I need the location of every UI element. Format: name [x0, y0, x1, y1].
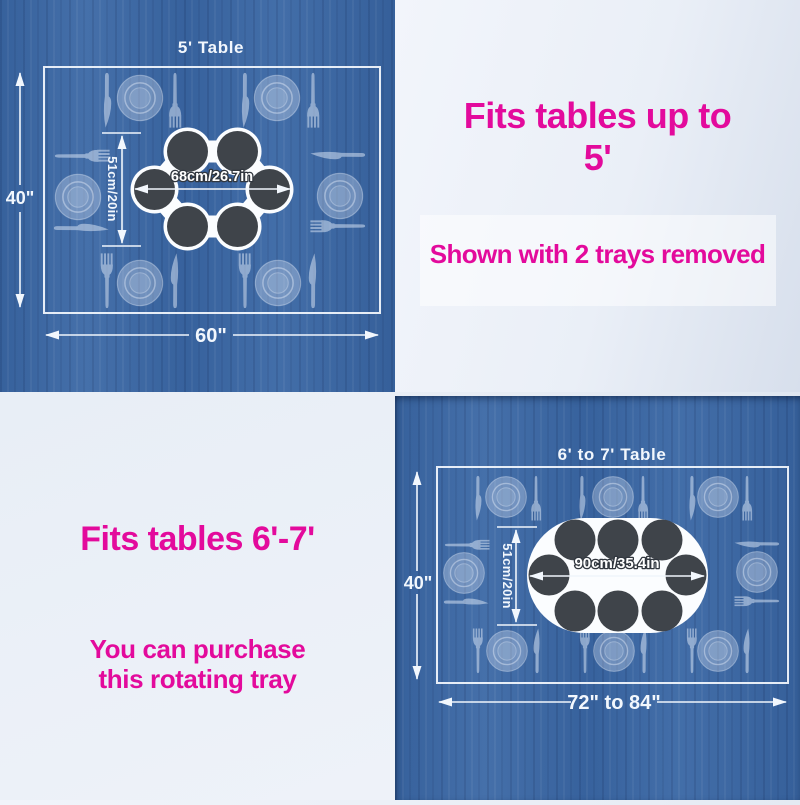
- tray-dish: [555, 591, 596, 632]
- knife-icon: [171, 253, 178, 308]
- table-size-title: 6' to 7' Table: [558, 445, 667, 464]
- note-band: Shown with 2 trays removed: [420, 215, 776, 306]
- table-width-label: 72" to 84": [567, 692, 660, 714]
- table-size-title: 5' Table: [178, 38, 244, 57]
- heading-line1: Fits tables up to: [405, 95, 790, 137]
- fork-icon: [101, 253, 113, 308]
- knife-icon: [735, 541, 780, 547]
- tray-height-label: 51cm/20in: [105, 156, 120, 222]
- fork-icon: [310, 220, 365, 232]
- plate-icon: [593, 477, 634, 518]
- fork-icon: [445, 540, 490, 550]
- plate-icon: [55, 174, 100, 219]
- tray-width-label: 68cm/26.7in: [171, 169, 253, 185]
- purchase-note: You can purchase this rotating tray: [10, 635, 385, 694]
- plate-icon: [737, 552, 778, 593]
- knife-icon: [579, 476, 585, 521]
- table-height-label: 40": [404, 573, 433, 593]
- table-width-label: 60": [195, 325, 227, 347]
- fork-icon: [169, 73, 181, 128]
- table-height-label: 40": [6, 188, 35, 208]
- plate-icon: [117, 75, 162, 120]
- place-settings: [54, 73, 365, 308]
- knife-icon: [534, 629, 540, 674]
- fork-icon: [580, 629, 590, 674]
- tray-dish: [529, 555, 570, 596]
- plate-icon: [487, 631, 528, 672]
- plate-icon: [317, 173, 362, 218]
- table-height-dimension: 40": [404, 472, 433, 679]
- knife-icon: [641, 629, 647, 674]
- fork-icon: [55, 150, 110, 162]
- plate-icon: [255, 260, 300, 305]
- fork-icon: [531, 476, 541, 521]
- fork-icon: [687, 629, 697, 674]
- plate-icon: [117, 260, 162, 305]
- knife-icon: [310, 152, 365, 159]
- tray-dish: [666, 555, 707, 596]
- table-height-dimension: 40": [6, 73, 35, 307]
- rotating-tray-product-infographic: { "colors": { "wood_blue": "#3b68a5", "p…: [0, 0, 800, 800]
- diagram-6-7ft-table: 6' to 7' Table 90cm/35.4in 51cm/20in 40"…: [395, 396, 800, 800]
- knife-icon: [54, 224, 109, 231]
- fork-icon: [735, 596, 780, 606]
- knife-icon: [744, 629, 750, 674]
- tray-dish: [217, 131, 258, 172]
- table-width-dimension: 72" to 84": [439, 692, 786, 714]
- tray-dish: [167, 131, 208, 172]
- purchase-note-line2: this rotating tray: [10, 665, 385, 695]
- knife-icon: [104, 73, 111, 128]
- tray-dish: [642, 591, 683, 632]
- tray-width-label: 90cm/35.4in: [574, 555, 659, 572]
- tray-dish: [167, 206, 208, 247]
- knife-icon: [242, 73, 249, 128]
- heading-line2: 5': [405, 137, 790, 179]
- plate-icon: [254, 75, 299, 120]
- purchase-note-line1: You can purchase: [10, 635, 385, 665]
- fork-icon: [638, 476, 648, 521]
- fork-icon: [473, 629, 483, 674]
- plate-icon: [486, 477, 527, 518]
- knife-icon: [689, 476, 695, 521]
- tray-dish: [598, 591, 639, 632]
- tray-dish: [217, 206, 258, 247]
- panel-top-right: Fits tables up to 5' Shown with 2 trays …: [395, 0, 800, 392]
- tray-height-label: 51cm/20in: [500, 543, 515, 609]
- table-diagram-5ft-svg: 5' Table 68cm/26.7in 51cm/20in 40" 60": [0, 0, 395, 392]
- plate-icon: [444, 553, 485, 594]
- knife-icon: [309, 253, 316, 308]
- fork-icon: [742, 476, 752, 521]
- plate-icon: [698, 631, 739, 672]
- table-width-dimension: 60": [46, 325, 378, 347]
- plate-icon: [698, 477, 739, 518]
- diagram-5ft-table: 5' Table 68cm/26.7in 51cm/20in 40" 60": [0, 0, 395, 392]
- fork-icon: [307, 73, 319, 128]
- knife-icon: [475, 476, 481, 521]
- knife-icon: [444, 599, 489, 605]
- fits-tables-6-7-heading: Fits tables 6'-7': [10, 520, 385, 559]
- fork-icon: [239, 253, 251, 308]
- trays-removed-note: Shown with 2 trays removed: [420, 239, 776, 270]
- table-diagram-6-7ft-svg: 6' to 7' Table 90cm/35.4in 51cm/20in 40"…: [395, 396, 800, 800]
- plate-icon: [594, 631, 635, 672]
- fits-tables-heading: Fits tables up to 5': [405, 95, 790, 179]
- panel-bottom-left: Fits tables 6'-7' You can purchase this …: [0, 392, 395, 800]
